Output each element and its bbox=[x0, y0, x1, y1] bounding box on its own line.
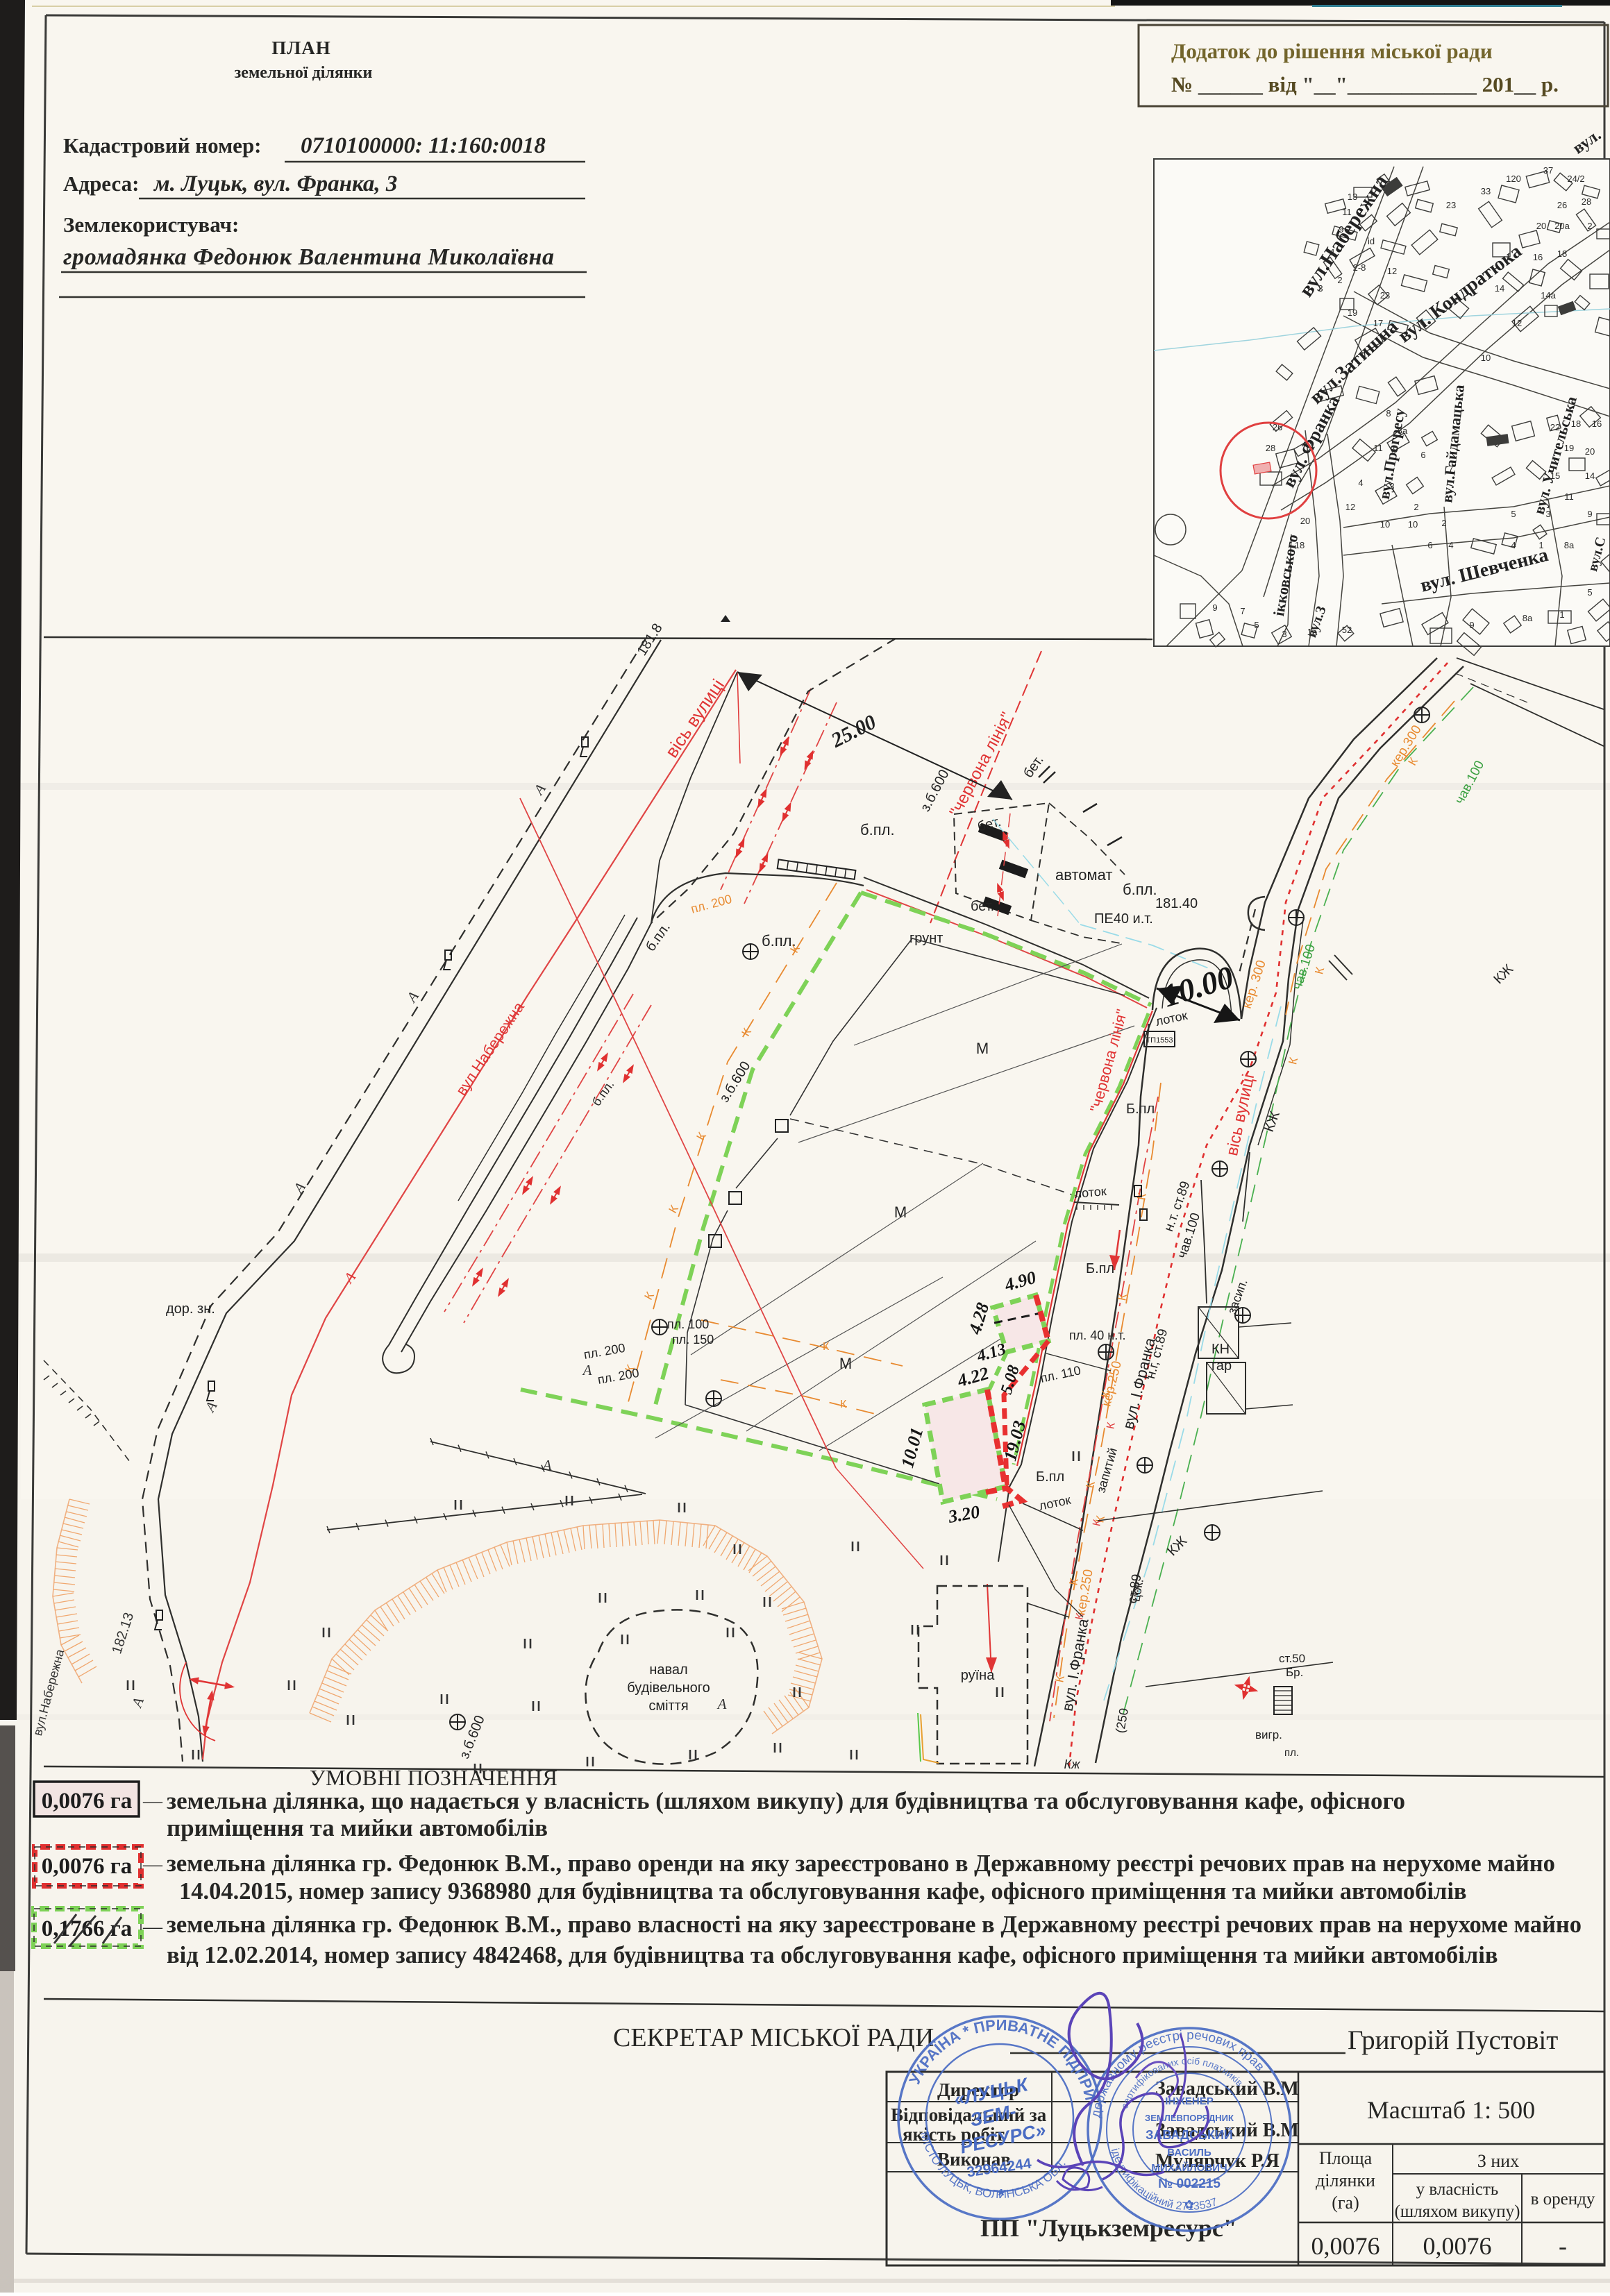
svg-text:11: 11 bbox=[1564, 491, 1574, 502]
svg-text:дор. зн.: дор. зн. bbox=[166, 1301, 215, 1317]
svg-text:КН: КН bbox=[1211, 1342, 1230, 1357]
svg-text:8: 8 bbox=[1386, 408, 1391, 419]
svg-text:М: М bbox=[894, 1204, 907, 1221]
svg-text:9: 9 bbox=[1212, 602, 1217, 613]
svg-text:9: 9 bbox=[1469, 620, 1474, 630]
svg-text:СЕКРЕТАР МІСЬКОЇ РАДИ: СЕКРЕТАР МІСЬКОЇ РАДИ bbox=[613, 2023, 934, 2052]
svg-text:Площа: Площа bbox=[1319, 2148, 1373, 2168]
svg-text:вигр.: вигр. bbox=[1255, 1728, 1282, 1741]
svg-text:0,0076 га: 0,0076 га bbox=[42, 1854, 133, 1879]
svg-text:120: 120 bbox=[1506, 174, 1521, 184]
svg-text:8а: 8а bbox=[1564, 540, 1575, 550]
svg-text:37: 37 bbox=[1543, 165, 1553, 176]
svg-text:4: 4 bbox=[1448, 540, 1453, 550]
svg-text:8а: 8а bbox=[1523, 613, 1533, 623]
svg-text:0,0076: 0,0076 bbox=[1423, 2232, 1492, 2260]
svg-text:земельна ділянка гр. Федонюк В: земельна ділянка гр. Федонюк В.М., право… bbox=[167, 1911, 1582, 1938]
svg-text:1: 1 bbox=[1538, 540, 1543, 550]
svg-text:19: 19 bbox=[1348, 307, 1357, 318]
svg-text:id: id bbox=[1368, 236, 1375, 246]
svg-text:16: 16 bbox=[1533, 252, 1543, 262]
svg-text:—: — bbox=[142, 1854, 163, 1875]
svg-text:1а: 1а bbox=[1307, 627, 1318, 637]
svg-text:0,0076 га: 0,0076 га bbox=[42, 1789, 133, 1814]
svg-text:12: 12 bbox=[1512, 318, 1522, 328]
svg-text:16: 16 bbox=[1592, 419, 1602, 429]
svg-text:сміття: сміття bbox=[648, 1698, 688, 1714]
svg-text:приміщення та мийки автомобілі: приміщення та мийки автомобілів bbox=[167, 1814, 548, 1841]
svg-text:гар: гар bbox=[1211, 1358, 1232, 1374]
svg-text:3: 3 bbox=[1389, 481, 1394, 491]
svg-text:ЗЕМЛЕВПОРЯДНИК: ЗЕМЛЕВПОРЯДНИК bbox=[1145, 2113, 1234, 2123]
svg-text:ст.50: ст.50 bbox=[1279, 1652, 1305, 1665]
svg-text:10: 10 bbox=[1380, 519, 1390, 530]
svg-text:20: 20 bbox=[1300, 516, 1310, 526]
svg-text:3: 3 bbox=[1282, 629, 1286, 639]
svg-text:Бр.: Бр. bbox=[1286, 1666, 1303, 1679]
svg-text:ПЛАН: ПЛАН bbox=[271, 37, 331, 58]
svg-text:0710100000: 11:160:0018: 0710100000: 11:160:0018 bbox=[301, 133, 546, 158]
svg-text:14.04.2015, номер запису 93689: 14.04.2015, номер запису 9368980 для буд… bbox=[179, 1878, 1467, 1905]
svg-text:3: 3 bbox=[1318, 283, 1323, 294]
svg-text:Адреса:: Адреса: bbox=[63, 171, 139, 196]
svg-text:Григорій Пустовіт: Григорій Пустовіт bbox=[1348, 2025, 1558, 2055]
svg-text:2: 2 bbox=[1587, 221, 1592, 231]
svg-text:3: 3 bbox=[1545, 509, 1550, 519]
svg-text:181.40: 181.40 bbox=[1155, 896, 1198, 911]
svg-text:—: — bbox=[142, 1791, 163, 1812]
svg-text:20: 20 bbox=[1536, 221, 1546, 231]
svg-text:4: 4 bbox=[1511, 540, 1516, 550]
svg-text:11: 11 bbox=[1342, 207, 1352, 217]
svg-text:14: 14 bbox=[1585, 471, 1595, 481]
svg-text:23: 23 bbox=[1446, 200, 1456, 210]
svg-text:М: М bbox=[839, 1355, 852, 1372]
svg-text:26: 26 bbox=[1557, 200, 1567, 210]
svg-text:28: 28 bbox=[1266, 443, 1275, 453]
svg-text:6: 6 bbox=[1427, 540, 1432, 550]
svg-text:33: 33 bbox=[1481, 186, 1491, 196]
svg-text:18: 18 bbox=[1571, 419, 1581, 429]
svg-text:5: 5 bbox=[1511, 509, 1516, 519]
svg-text:земельної ділянки: земельної ділянки bbox=[235, 64, 373, 82]
svg-text:в оренду: в оренду bbox=[1531, 2190, 1595, 2209]
svg-text:12: 12 bbox=[1345, 502, 1355, 512]
svg-text:А: А bbox=[716, 1696, 727, 1712]
svg-text:К: К bbox=[840, 1399, 847, 1410]
svg-text:пл. 150: пл. 150 bbox=[672, 1333, 714, 1347]
svg-text:руїна: руїна bbox=[961, 1668, 996, 1683]
svg-text:ІНЖЕНЕР: ІНЖЕНЕР bbox=[1165, 2095, 1213, 2107]
svg-text:8а: 8а bbox=[1398, 425, 1408, 436]
svg-text:Додаток до рішення міської ра: Додаток до рішення міської ради bbox=[1171, 39, 1493, 63]
svg-text:автомат: автомат bbox=[1055, 866, 1112, 884]
svg-text:*: * bbox=[998, 2185, 1005, 2206]
svg-text:м. Луцьк, вул. Франка, 3: м. Луцьк, вул. Франка, 3 bbox=[153, 171, 397, 196]
svg-text:пл.: пл. bbox=[1284, 1747, 1299, 1759]
svg-text:9: 9 bbox=[1339, 224, 1343, 235]
svg-text:К: К bbox=[823, 1341, 830, 1353]
svg-text:-: - bbox=[1559, 2232, 1567, 2260]
svg-text:М: М bbox=[976, 1040, 989, 1057]
svg-text:Кж: Кж bbox=[1064, 1757, 1082, 1771]
svg-text:№ ______ від "__"____________: № ______ від "__"____________ 201__ р. bbox=[1171, 72, 1559, 96]
svg-text:ВАСИЛЬ: ВАСИЛЬ bbox=[1167, 2147, 1211, 2159]
svg-text:12: 12 bbox=[1387, 266, 1397, 276]
svg-text:Б.пл: Б.пл bbox=[1086, 1261, 1114, 1276]
svg-text:УМОВНІ ПОЗНАЧЕННЯ: УМОВНІ ПОЗНАЧЕННЯ bbox=[310, 1765, 557, 1790]
svg-text:20а: 20а bbox=[1554, 221, 1570, 231]
svg-text:1: 1 bbox=[1330, 247, 1335, 258]
svg-text:від 12.02.2014, номер запису: від 12.02.2014, номер запису 4842468, дл… bbox=[167, 1942, 1498, 1968]
svg-text:19: 19 bbox=[1564, 443, 1574, 453]
svg-text:б.пл.: б.пл. bbox=[860, 821, 895, 838]
svg-text:Масштаб 1: 500: Масштаб 1: 500 bbox=[1367, 2096, 1535, 2124]
svg-text:7: 7 bbox=[1448, 464, 1453, 474]
svg-text:10: 10 bbox=[1481, 353, 1491, 363]
svg-text:28: 28 bbox=[1582, 196, 1591, 207]
svg-text:Землекористувач:: Землекористувач: bbox=[63, 212, 239, 237]
svg-text:навал: навал bbox=[649, 1662, 687, 1678]
svg-text:18: 18 bbox=[1557, 248, 1567, 259]
svg-text:✿: ✿ bbox=[1184, 2198, 1194, 2211]
svg-text:у власність: у власність bbox=[1416, 2180, 1499, 2199]
svg-text:52: 52 bbox=[1342, 625, 1352, 635]
svg-text:4: 4 bbox=[1358, 478, 1363, 488]
svg-text:9: 9 bbox=[1587, 509, 1592, 519]
svg-text:14: 14 bbox=[1495, 283, 1504, 294]
svg-text:9: 9 bbox=[1393, 444, 1398, 455]
svg-text:2: 2 bbox=[1441, 518, 1446, 528]
svg-text:2: 2 bbox=[1414, 502, 1418, 512]
svg-text:лоток: лоток bbox=[1074, 1184, 1107, 1201]
svg-text:—: — bbox=[142, 1916, 163, 1938]
svg-text:0,0076: 0,0076 bbox=[1311, 2232, 1380, 2260]
svg-text:громадянка Федонюк Валентина М: громадянка Федонюк Валентина Миколаївна bbox=[63, 244, 555, 270]
svg-text:20: 20 bbox=[1585, 446, 1595, 457]
svg-text:2: 2 bbox=[1337, 275, 1342, 285]
svg-text:(шляхом викупу): (шляхом викупу) bbox=[1395, 2202, 1520, 2221]
svg-text:земельна ділянка гр. Федонюк В: земельна ділянка гр. Федонюк В.М., право… bbox=[167, 1850, 1555, 1877]
svg-text:№ 002215: № 002215 bbox=[1158, 2177, 1221, 2191]
svg-text:18: 18 bbox=[1295, 540, 1305, 550]
svg-text:2-8: 2-8 bbox=[1353, 262, 1366, 273]
svg-text:(га): (га) bbox=[1332, 2193, 1359, 2213]
svg-text:ділянки: ділянки bbox=[1316, 2170, 1375, 2191]
svg-text:Б.пл: Б.пл bbox=[1036, 1469, 1064, 1485]
svg-text:пл. 40 н.т.: пл. 40 н.т. bbox=[1069, 1328, 1125, 1342]
svg-text:22: 22 bbox=[1550, 422, 1560, 432]
svg-text:6: 6 bbox=[1420, 450, 1425, 460]
svg-text:5: 5 bbox=[1587, 587, 1592, 598]
svg-text:14а: 14а bbox=[1541, 290, 1556, 301]
svg-text:17: 17 bbox=[1373, 318, 1383, 328]
svg-text:23: 23 bbox=[1380, 290, 1390, 301]
svg-text:б.пл.: б.пл. bbox=[1123, 881, 1157, 898]
svg-text:пл. 100: пл. 100 bbox=[667, 1317, 709, 1331]
svg-text:земельна ділянка, що надаєтьс: земельна ділянка, що надається у власніс… bbox=[167, 1787, 1405, 1814]
svg-text:будівельного: будівельного bbox=[627, 1680, 710, 1696]
svg-text:10: 10 bbox=[1408, 519, 1418, 530]
svg-text:ТП1553: ТП1553 bbox=[1146, 1036, 1173, 1045]
svg-text:1: 1 bbox=[1559, 609, 1564, 620]
svg-text:24/2: 24/2 bbox=[1567, 174, 1584, 184]
svg-text:З них: З них bbox=[1477, 2151, 1519, 2171]
svg-text:11: 11 bbox=[1373, 443, 1383, 453]
svg-text:ПЕ40 и.т.: ПЕ40 и.т. bbox=[1094, 911, 1153, 927]
svg-text:15: 15 bbox=[1550, 471, 1560, 481]
svg-text:Кадастровий номер:: Кадастровий номер: bbox=[63, 133, 262, 158]
svg-text:грунт: грунт bbox=[909, 931, 943, 946]
svg-text:13: 13 bbox=[1348, 192, 1357, 202]
svg-text:5: 5 bbox=[1254, 620, 1259, 630]
svg-text:7: 7 bbox=[1240, 606, 1245, 616]
svg-text:А: А bbox=[582, 1362, 592, 1378]
svg-text:бет.: бет. bbox=[971, 899, 994, 914]
